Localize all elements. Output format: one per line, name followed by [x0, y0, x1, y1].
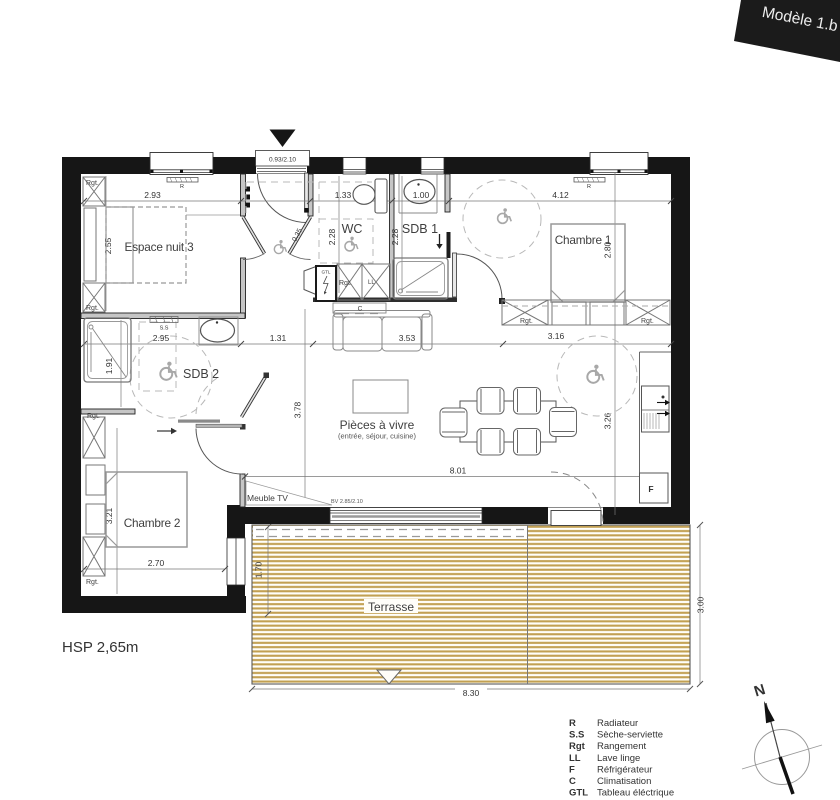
svg-text:Rangement: Rangement — [597, 741, 646, 752]
svg-text:Rgt.: Rgt. — [86, 305, 99, 312]
svg-text:1.00: 1.00 — [413, 190, 430, 200]
svg-text:Rgt.: Rgt. — [86, 579, 99, 586]
svg-text:8.30: 8.30 — [463, 688, 480, 698]
svg-text:S.S: S.S — [569, 730, 584, 741]
svg-text:3.78: 3.78 — [293, 401, 303, 418]
svg-text:WC: WC — [342, 222, 363, 236]
svg-text:LL: LL — [569, 753, 581, 764]
svg-text:R: R — [587, 184, 591, 190]
svg-text:8.01: 8.01 — [450, 466, 467, 476]
svg-text:Meuble TV: Meuble TV — [247, 493, 288, 503]
svg-text:SDB 1: SDB 1 — [402, 222, 438, 236]
svg-text:BV 2.85/2.10: BV 2.85/2.10 — [331, 499, 363, 505]
svg-text:GTL: GTL — [569, 788, 588, 799]
svg-text:R: R — [569, 718, 576, 729]
svg-text:2.93: 2.93 — [144, 190, 161, 200]
svg-text:F: F — [648, 484, 653, 494]
svg-text:Pièces à vivre: Pièces à vivre — [340, 418, 415, 432]
svg-text:2.55: 2.55 — [103, 237, 113, 254]
svg-text:Rgt.: Rgt. — [87, 413, 100, 420]
svg-text:Rgt.: Rgt. — [86, 180, 99, 187]
svg-text:Chambre 1: Chambre 1 — [555, 233, 612, 247]
svg-text:0.93/2.10: 0.93/2.10 — [269, 157, 296, 164]
svg-text:3.53: 3.53 — [399, 333, 416, 343]
svg-text:Sèche-serviette: Sèche-serviette — [597, 730, 663, 741]
svg-text:LL: LL — [368, 280, 375, 286]
svg-text:Tableau éléctrique: Tableau éléctrique — [597, 788, 674, 799]
svg-text:3.00: 3.00 — [696, 596, 706, 613]
svg-text:Espace nuit 3: Espace nuit 3 — [125, 240, 195, 254]
svg-text:4.12: 4.12 — [552, 190, 569, 200]
svg-text:GTL: GTL — [322, 270, 331, 275]
svg-text:1.70: 1.70 — [254, 561, 264, 578]
svg-text:Chambre 2: Chambre 2 — [124, 516, 181, 530]
svg-text:1.33: 1.33 — [335, 190, 352, 200]
svg-text:R: R — [180, 184, 184, 190]
svg-text:3.16: 3.16 — [548, 331, 565, 341]
svg-text:(entrée, séjour, cuisine): (entrée, séjour, cuisine) — [338, 432, 416, 441]
svg-text:F: F — [569, 764, 575, 775]
svg-text:Terrasse: Terrasse — [368, 600, 414, 614]
svg-text:C: C — [358, 306, 363, 313]
svg-text:Radiateur: Radiateur — [597, 718, 638, 729]
svg-text:Rgt.: Rgt. — [641, 318, 654, 325]
svg-text:SDB 2: SDB 2 — [183, 367, 219, 381]
svg-text:Rgt.: Rgt. — [520, 318, 533, 325]
svg-text:2.95: 2.95 — [153, 333, 170, 343]
svg-text:1.31: 1.31 — [270, 333, 287, 343]
svg-text:C: C — [569, 776, 576, 787]
svg-text:Lave linge: Lave linge — [597, 753, 640, 764]
svg-text:Réfrigérateur: Réfrigérateur — [597, 764, 652, 775]
svg-text:1.91: 1.91 — [104, 357, 114, 374]
svg-text:2.28: 2.28 — [327, 228, 337, 245]
svg-text:2.70: 2.70 — [148, 558, 165, 568]
svg-text:Climatisation: Climatisation — [597, 776, 651, 787]
svg-text:S.S: S.S — [160, 326, 169, 332]
svg-text:Rgt.: Rgt. — [339, 280, 352, 287]
svg-text:Rgt: Rgt — [569, 741, 586, 752]
svg-text:HSP 2,65m: HSP 2,65m — [62, 639, 138, 656]
svg-text:2.28: 2.28 — [390, 228, 400, 245]
